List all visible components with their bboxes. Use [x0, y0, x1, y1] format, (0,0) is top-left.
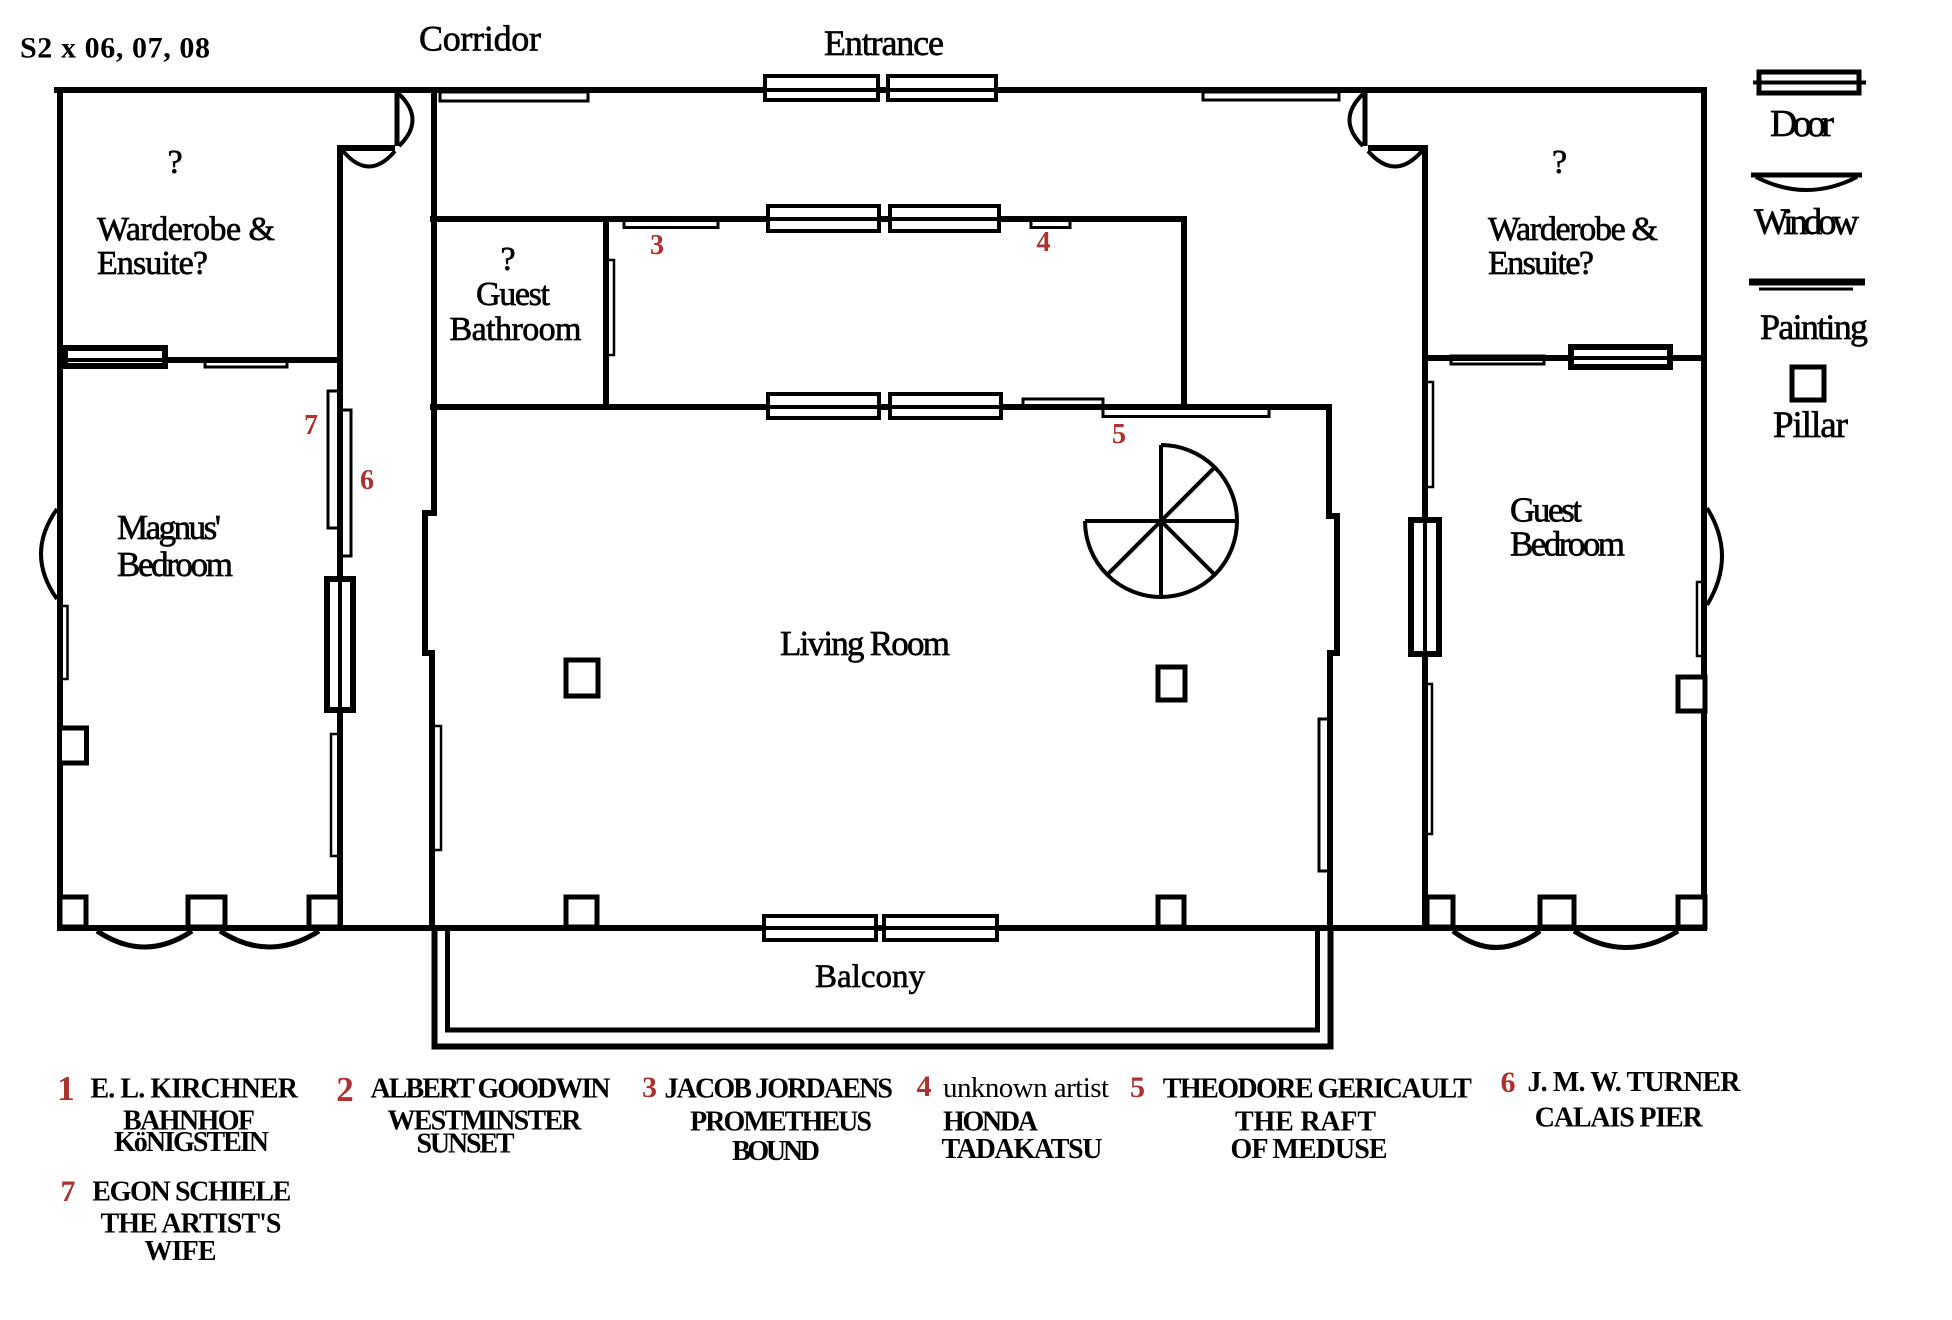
svg-text:Warderobe &: Warderobe &: [1488, 211, 1658, 248]
svg-text:Bedroom: Bedroom: [117, 545, 233, 584]
svg-text:5: 5: [1112, 419, 1126, 450]
svg-text:J. M. W. TURNER: J. M. W. TURNER: [1528, 1067, 1742, 1098]
svg-text:TADAKATSU: TADAKATSU: [942, 1134, 1103, 1165]
svg-text:Painting: Painting: [1760, 307, 1868, 347]
svg-text:Guest: Guest: [476, 276, 551, 313]
svg-text:WIFE: WIFE: [145, 1236, 217, 1267]
svg-text:KöNIGSTEIN: KöNIGSTEIN: [114, 1127, 269, 1158]
svg-text:Entrance: Entrance: [824, 23, 944, 63]
svg-text:?: ?: [500, 241, 515, 278]
svg-text:Corridor: Corridor: [419, 19, 541, 59]
svg-text:EGON SCHIELE: EGON SCHIELE: [92, 1177, 291, 1208]
svg-text:Bedroom: Bedroom: [1510, 525, 1625, 564]
svg-text:4: 4: [917, 1070, 932, 1103]
svg-text:Living Room: Living Room: [780, 624, 950, 663]
svg-text:THEODORE GERICAULT: THEODORE GERICAULT: [1163, 1074, 1472, 1105]
svg-text:7: 7: [304, 410, 318, 441]
svg-text:BOUND: BOUND: [732, 1136, 820, 1167]
svg-text:THE ARTIST'S: THE ARTIST'S: [101, 1209, 282, 1240]
svg-text:CALAIS PIER: CALAIS PIER: [1535, 1103, 1704, 1134]
svg-text:HONDA: HONDA: [943, 1107, 1039, 1138]
svg-text:OF MEDUSE: OF MEDUSE: [1231, 1134, 1388, 1165]
svg-text:Balcony: Balcony: [815, 959, 925, 995]
svg-text:Window: Window: [1754, 202, 1859, 243]
svg-text:2: 2: [336, 1070, 354, 1109]
svg-text:6: 6: [1501, 1066, 1516, 1099]
svg-text:Magnus': Magnus': [117, 508, 221, 547]
svg-text:ALBERT GOODWIN: ALBERT GOODWIN: [371, 1074, 611, 1105]
svg-text:Warderobe &: Warderobe &: [97, 211, 275, 248]
svg-text:Bathroom: Bathroom: [450, 311, 582, 348]
svg-text:E. L. KIRCHNER: E. L. KIRCHNER: [91, 1074, 299, 1105]
svg-text:3: 3: [642, 1071, 657, 1104]
svg-text:PROMETHEUS: PROMETHEUS: [690, 1107, 872, 1138]
svg-text:SUNSET: SUNSET: [417, 1129, 515, 1160]
svg-text:THE RAFT: THE RAFT: [1235, 1107, 1376, 1138]
svg-text:6: 6: [360, 465, 374, 496]
svg-text:5: 5: [1130, 1071, 1145, 1104]
svg-text:?: ?: [1552, 144, 1567, 181]
svg-text:7: 7: [61, 1175, 76, 1208]
svg-text:4: 4: [1037, 227, 1051, 258]
svg-text:3: 3: [650, 230, 664, 261]
svg-text:?: ?: [167, 144, 182, 181]
svg-text:JACOB JORDAENS: JACOB JORDAENS: [665, 1074, 894, 1105]
svg-text:1: 1: [57, 1069, 75, 1108]
svg-text:Pillar: Pillar: [1773, 405, 1848, 446]
svg-text:unknown artist: unknown artist: [943, 1072, 1109, 1104]
svg-text:S2 x 06, 07, 08: S2 x 06, 07, 08: [20, 32, 210, 65]
svg-text:Door: Door: [1770, 103, 1834, 145]
svg-text:Ensuite?: Ensuite?: [97, 245, 208, 282]
svg-text:Ensuite?: Ensuite?: [1488, 245, 1594, 282]
